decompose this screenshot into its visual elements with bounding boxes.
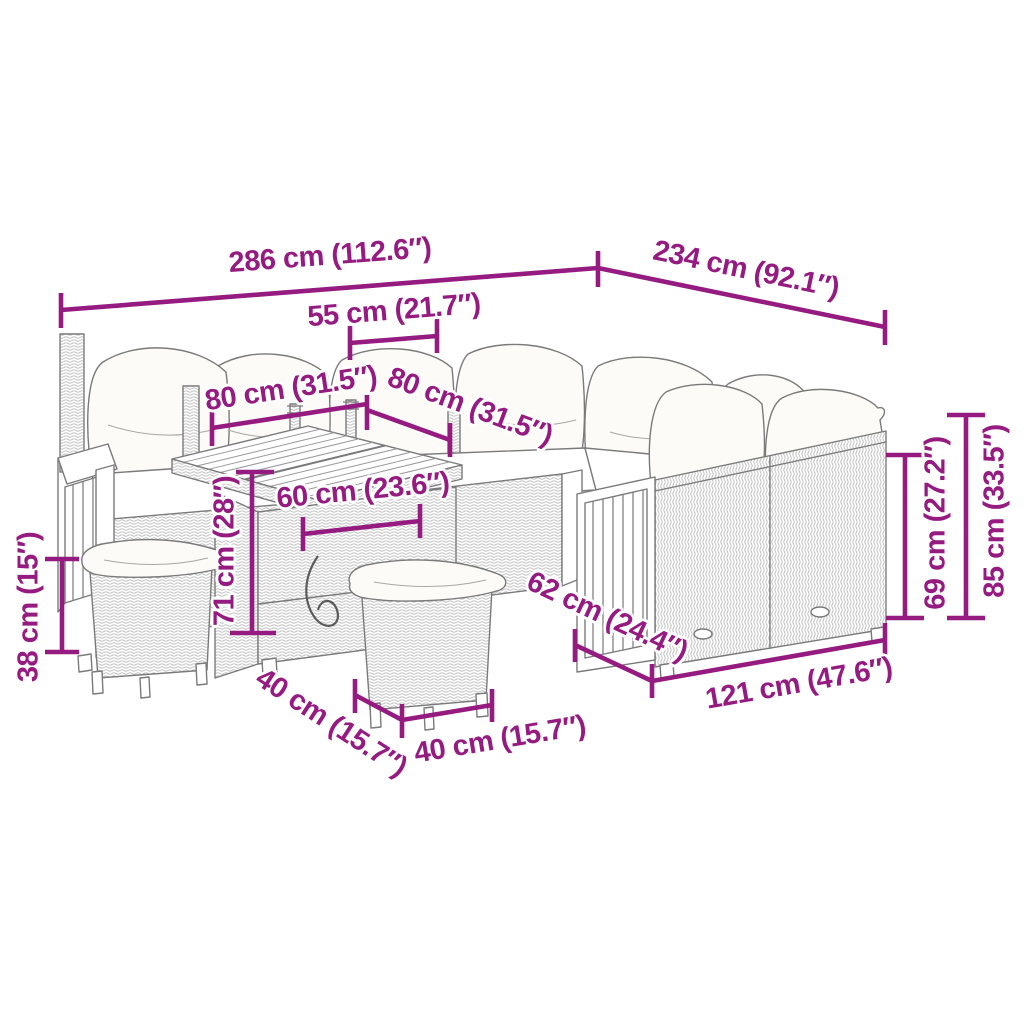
dim-line-armrest-height — [886, 455, 924, 618]
dim-label-table-height: 71 cm (28″) — [209, 476, 242, 626]
dim-label-armrest-height: 69 cm (27.2″) — [920, 436, 953, 609]
dim-label-stool-height: 38 cm (15″) — [13, 532, 46, 682]
dim-line-stool-height — [45, 559, 79, 652]
dimension-lines — [0, 0, 1024, 1024]
dimension-diagram: 286 cm (112.6″) 234 cm (92.1″) 55 cm (21… — [0, 0, 1024, 1024]
dim-label-back-height: 85 cm (33.5″) — [979, 424, 1012, 597]
dim-line-table-top-depth — [367, 410, 450, 457]
dim-line-stool-width — [402, 689, 492, 722]
